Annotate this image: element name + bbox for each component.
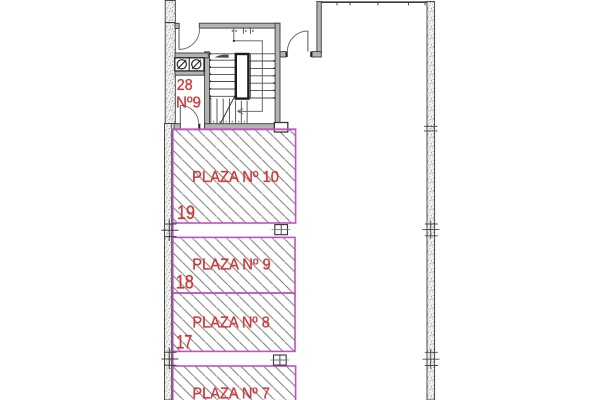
svg-text:Nº9: Nº9 — [176, 95, 201, 112]
svg-text:PLAZA Nº 9: PLAZA Nº 9 — [192, 256, 271, 273]
svg-text:28: 28 — [177, 77, 193, 94]
svg-text:17: 17 — [176, 332, 192, 353]
svg-text:18: 18 — [176, 273, 194, 294]
svg-text:19: 19 — [177, 203, 195, 224]
svg-text:PLAZA Nº 8: PLAZA Nº 8 — [192, 315, 270, 332]
svg-text:PLAZA Nº 7: PLAZA Nº 7 — [192, 386, 270, 400]
svg-text:PLAZA Nº 10: PLAZA Nº 10 — [192, 169, 279, 186]
